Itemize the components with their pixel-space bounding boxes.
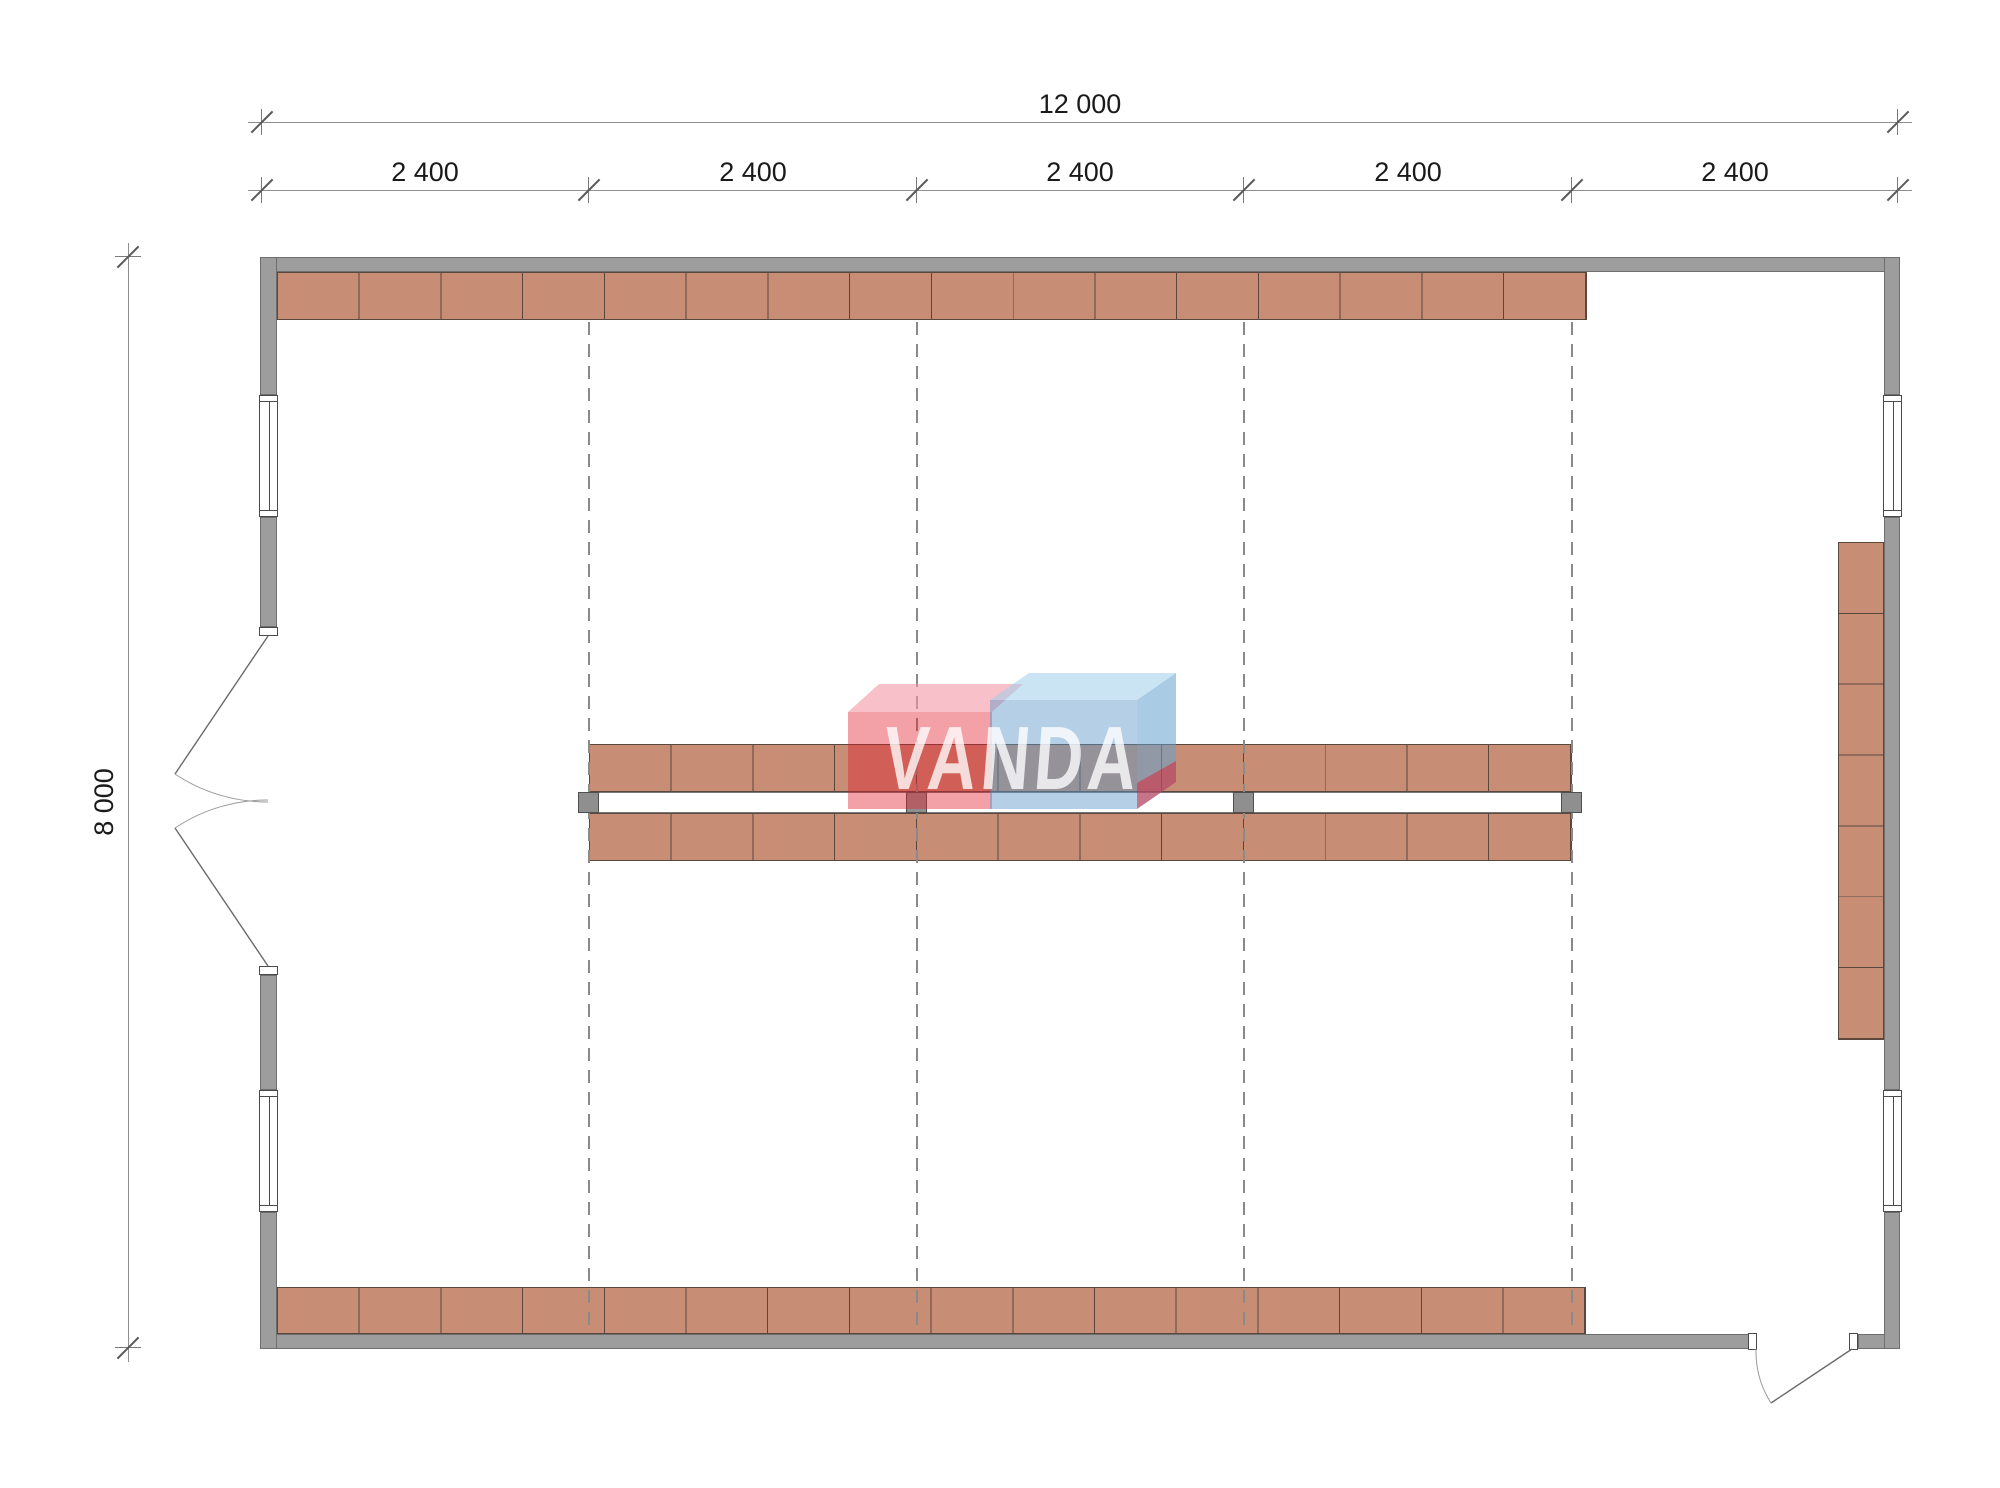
floor-plan-canvas: 12 000 2 400 2 400 2 400 2 400 2 400 8 0… bbox=[0, 0, 2000, 1488]
door-arc-lower bbox=[175, 800, 268, 828]
left-double-door bbox=[175, 636, 268, 966]
logo-watermark: VANDA bbox=[840, 665, 1190, 820]
door-leaf-bottom bbox=[1771, 1349, 1852, 1403]
door-leaf-upper bbox=[175, 636, 268, 774]
door-leaf-lower bbox=[175, 828, 268, 966]
door-arc-upper bbox=[175, 774, 268, 802]
logo-text: VANDA bbox=[880, 708, 1145, 808]
door-arc-bottom bbox=[1756, 1349, 1771, 1403]
logo-wordmark-group: VANDA bbox=[880, 708, 1145, 808]
bottom-right-door bbox=[1756, 1349, 1852, 1403]
